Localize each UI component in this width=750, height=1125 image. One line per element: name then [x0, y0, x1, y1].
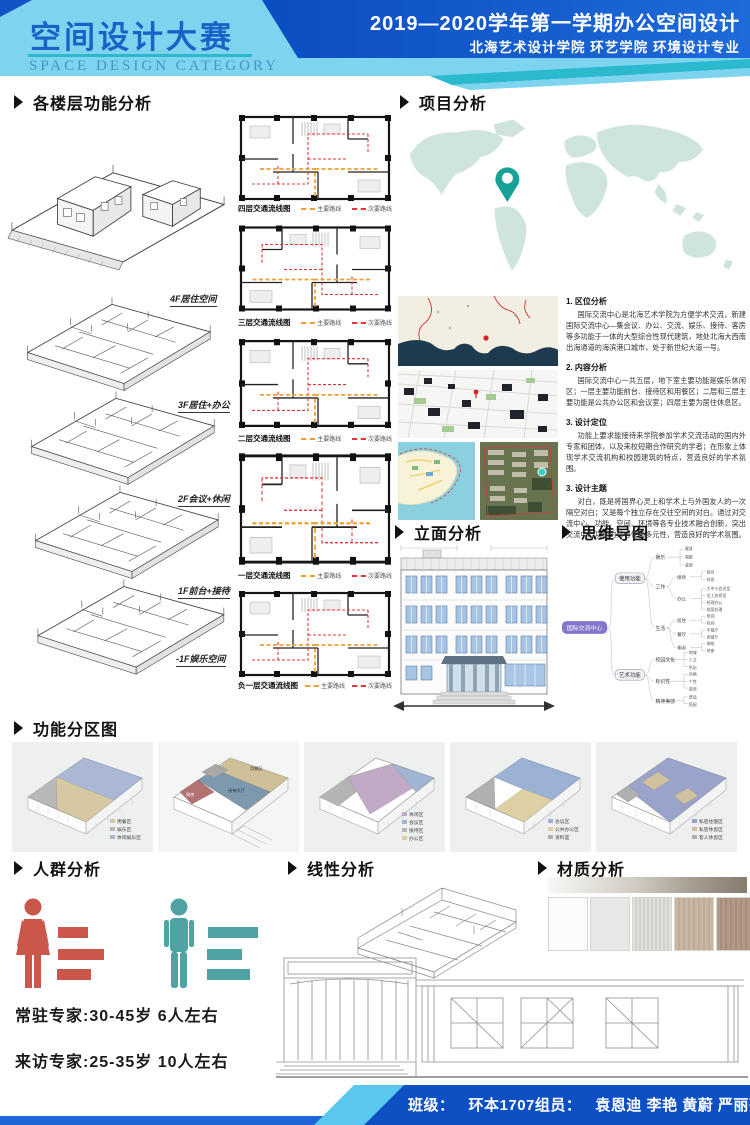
plan-caption-4f: 四层交通流线图 主要路线 次要路线	[238, 203, 392, 214]
svg-text:私密住宿区: 私密住宿区	[699, 818, 723, 825]
svg-text:搭配: 搭配	[689, 702, 697, 707]
paragraph-heading: 3. 设计主题	[566, 483, 746, 494]
male-icon	[163, 898, 195, 990]
svg-text:经理办公: 经理办公	[707, 600, 723, 605]
poster-subtitle-en: SPACE DESIGN CATEGORY	[29, 58, 279, 75]
female-bar-1	[58, 927, 88, 938]
zoning-panel-1f: 用餐区 接待大厅 厨房	[158, 742, 299, 852]
svg-text:客人休息区: 客人休息区	[699, 834, 723, 841]
svg-text:风格: 风格	[689, 672, 697, 677]
team-info: 组员： 袁恩迪 李艳 黄蔚 严丽芬	[535, 1094, 750, 1115]
svg-text:中餐厅: 中餐厅	[707, 627, 719, 632]
plan-1f-circulation	[238, 452, 392, 566]
sub-route-dash	[352, 685, 366, 687]
svg-text:私密休息区: 私密休息区	[699, 826, 723, 833]
svg-text:前台: 前台	[707, 569, 715, 574]
material-swatch-lightwood	[674, 897, 714, 951]
paragraph-body: 功能上要求能接待来学院参加学术交流活动的国内外专家和团体，以及来校短期合作研究的…	[566, 430, 746, 474]
zoning-legend: 私密住宿区 私密休息区 客人休息区	[692, 818, 723, 841]
world-map	[398, 112, 746, 292]
paragraph-heading: 3. 设计定位	[566, 417, 746, 428]
material-gradient-bar	[548, 877, 747, 893]
svg-text:咖啡: 咖啡	[707, 641, 715, 646]
mindmap-branch-use: 使用功能	[619, 575, 641, 583]
main-route-dash	[305, 685, 319, 687]
svg-text:人文: 人文	[689, 657, 697, 662]
arrow-icon	[14, 721, 24, 735]
svg-text:地域: 地域	[689, 650, 697, 655]
svg-text:健身: 健身	[685, 546, 693, 551]
svg-text:接待大厅: 接待大厅	[228, 787, 245, 794]
svg-text:精神美感: 精神美感	[655, 698, 675, 705]
section-zoning: 功能分区图	[14, 716, 118, 740]
male-bar-2	[207, 949, 242, 960]
female-bar-3	[57, 969, 91, 980]
svg-text:档案处理: 档案处理	[707, 607, 723, 612]
arrow-icon	[14, 95, 24, 109]
footer-credits: 班级： 环本1707 组员： 袁恩迪 李艳 黄蔚 严丽芬	[408, 1094, 740, 1115]
arrow-icon	[395, 525, 405, 539]
svg-text:会议区: 会议区	[409, 819, 424, 826]
material-swatch-darkwood	[716, 897, 750, 951]
resident-experts-text: 常驻专家:30-45岁 6人左右	[15, 1002, 219, 1026]
satellite-map	[480, 442, 558, 520]
svg-text:居住: 居住	[677, 617, 686, 624]
plan-caption-1f: 一层交通流线图 主要路线 次要路线	[238, 570, 392, 581]
floor-label-1f: 1F前台+接待	[178, 584, 230, 599]
plan-caption-3f: 三层交通流线图 主要路线 次要路线	[238, 317, 392, 328]
svg-text:休闲区: 休闲区	[409, 811, 424, 818]
plan-2f-circulation	[238, 338, 392, 429]
svg-text:娱乐: 娱乐	[655, 554, 665, 561]
svg-text:娱乐区: 娱乐区	[117, 826, 132, 833]
svg-text:会议区: 会议区	[555, 818, 570, 825]
svg-text:舒适: 舒适	[689, 694, 697, 699]
section-project: 项目分析	[400, 90, 487, 114]
male-bar-3	[207, 969, 250, 980]
project-analysis-text: 1. 区位分析 国际交流中心是北海艺术学院为方便学术交流，新建国际交流中心—集会…	[566, 296, 746, 549]
main-route-dash	[301, 575, 315, 577]
svg-text:厨房: 厨房	[186, 791, 194, 798]
main-route-dash	[301, 322, 315, 324]
svg-text:资料室: 资料室	[555, 834, 570, 841]
paragraph-heading: 1. 区位分析	[566, 296, 746, 307]
material-swatch-lightgray	[590, 897, 630, 951]
street-map	[398, 370, 558, 438]
svg-text:生活: 生活	[655, 625, 665, 632]
svg-text:标识性: 标识性	[655, 678, 670, 685]
material-swatch-texture	[632, 897, 672, 951]
plan-3f-circulation	[238, 224, 392, 313]
poster: 空间设计大赛 SPACE DESIGN CATEGORY 2019—2020学年…	[0, 0, 750, 1125]
male-bar-1	[208, 927, 258, 938]
elevation-drawing	[393, 542, 555, 712]
arrow-icon	[400, 95, 410, 109]
material-swatches	[548, 897, 750, 951]
svg-text:休息: 休息	[707, 577, 715, 582]
zoning-panel-b1: 用餐区 娱乐区 休闲娱乐区	[12, 742, 153, 852]
poster-title: 空间设计大赛	[30, 12, 234, 57]
svg-text:办公: 办公	[677, 595, 686, 602]
svg-text:休闲: 休闲	[677, 645, 686, 652]
material-swatch-white	[548, 897, 588, 951]
main-route-dash	[301, 208, 315, 210]
section-elevation: 立面分析	[395, 520, 482, 544]
course-title: 2019—2020学年第一学期办公空间设计	[370, 7, 740, 36]
city-map	[398, 442, 475, 520]
female-icon	[14, 898, 52, 990]
arrow-icon	[14, 861, 24, 875]
svg-text:色彩: 色彩	[689, 665, 697, 670]
plan-b1-circulation	[238, 590, 392, 678]
svg-text:休闲娱乐区: 休闲娱乐区	[117, 834, 141, 841]
floor-label-b1: -1F娱乐空间	[176, 652, 226, 667]
arrow-icon	[538, 861, 548, 875]
svg-text:校园文化: 校园文化	[655, 656, 675, 663]
svg-text:唱歌: 唱歌	[685, 555, 693, 560]
female-bar-2	[58, 949, 104, 960]
sub-route-dash	[352, 322, 366, 324]
svg-text:大中小会议室: 大中小会议室	[707, 586, 731, 591]
plan-caption-b1: 负一层交通流线图 主要路线 次要路线	[238, 680, 392, 691]
svg-text:公共办公区: 公共办公区	[555, 826, 579, 833]
floor-label-2f: 2F会议+休闲	[178, 492, 230, 507]
sub-route-dash	[352, 438, 366, 440]
svg-text:接待区: 接待区	[409, 827, 424, 834]
svg-text:个性: 个性	[689, 679, 697, 684]
sub-route-dash	[352, 575, 366, 577]
svg-text:办公区: 办公区	[409, 835, 424, 842]
main-route-dash	[301, 438, 315, 440]
mindmap-diagram: 国际交流中心 使用功能 艺术功能 娱乐 工作 生活 校园文化 标识性 精神美感 …	[556, 538, 748, 718]
svg-text:员工休息室: 员工休息室	[707, 593, 727, 598]
mindmap-branch-art: 艺术功能	[619, 671, 641, 679]
svg-text:装饰: 装饰	[689, 687, 697, 692]
zoning-panel-2f: 休闲区 会议区 接待区 办公区	[304, 742, 445, 852]
floor-label-3f: 3F居住+办公	[178, 398, 230, 413]
svg-text:西餐厅: 西餐厅	[707, 634, 719, 639]
class-info: 班级： 环本1707	[408, 1094, 535, 1115]
svg-text:桌游: 桌游	[685, 562, 693, 567]
title-underline	[28, 54, 252, 57]
mindmap-center-node: 国际交流中心	[567, 624, 602, 632]
svg-text:标间: 标间	[707, 621, 715, 626]
floor-label-4f: 4F居住空间	[170, 292, 217, 307]
linear-elevation-drawing	[276, 950, 748, 1082]
location-pin-icon	[495, 167, 519, 202]
zoning-panel-4f: 私密住宿区 私密休息区 客人休息区	[596, 742, 737, 852]
svg-text:餐饮: 餐饮	[677, 631, 686, 638]
zoning-panel-3f: 会议区 公共办公区 资料室	[450, 742, 591, 852]
svg-text:用餐区: 用餐区	[250, 765, 263, 772]
svg-text:茶座: 茶座	[707, 648, 715, 653]
sub-route-dash	[352, 208, 366, 210]
svg-text:单间: 单间	[707, 614, 715, 619]
svg-text:用餐区: 用餐区	[117, 818, 132, 825]
svg-text:接待: 接待	[677, 574, 686, 581]
school-line: 北海艺术设计学院 环艺学院 环境设计专业	[469, 36, 740, 56]
visiting-experts-text: 来访专家:25-35岁 10人左右	[15, 1048, 229, 1072]
paragraph-body: 国际交流中心一共五层，地下室主要功能是娱乐休闲区；一层主要功能前台、接待区和用餐…	[566, 375, 746, 408]
paragraph-body: 国际交流中心是北海艺术学院为方便学术交流，新建国际交流中心—集会议、办公、交流、…	[566, 309, 746, 353]
axonometric-roof-4f	[4, 108, 232, 298]
plan-caption-2f: 二层交通流线图 主要路线 次要路线	[238, 433, 392, 444]
region-map	[398, 296, 558, 366]
paragraph-heading: 2. 内容分析	[566, 362, 746, 373]
plan-4f-circulation	[238, 114, 392, 202]
svg-text:工作: 工作	[655, 584, 665, 591]
arrow-icon	[288, 861, 298, 875]
paragraph-body: 对白，既是将国界心灵上和学术上与外国友人的一次隔空对白；又是每个独立存在交往空间…	[566, 496, 746, 540]
section-people: 人群分析	[14, 856, 101, 880]
